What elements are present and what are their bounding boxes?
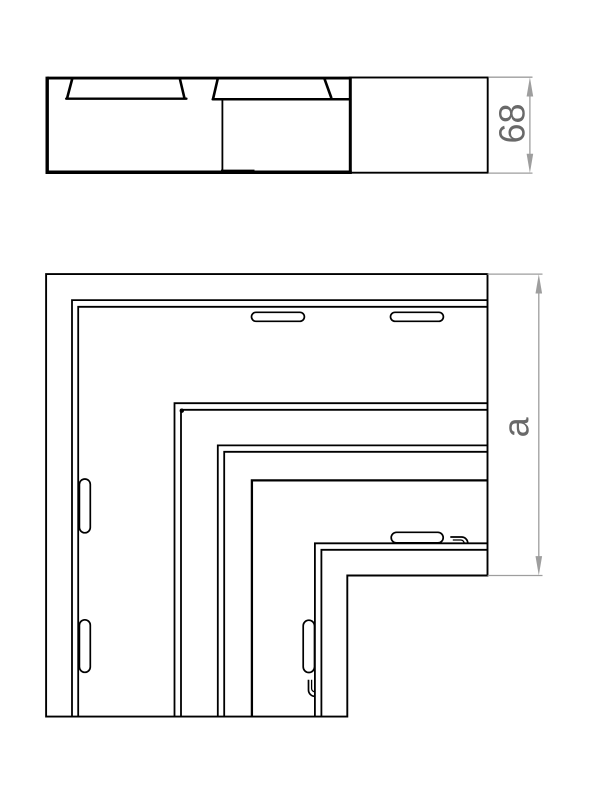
svg-text:68: 68 <box>492 103 533 143</box>
svg-text:a: a <box>496 416 537 437</box>
